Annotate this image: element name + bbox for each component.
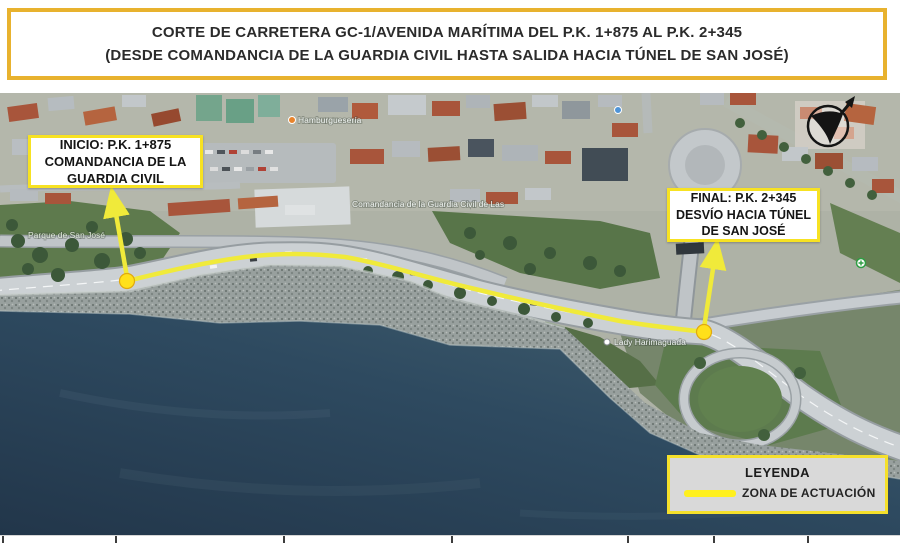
pharmacy-cross-icon	[857, 259, 866, 268]
aerial-map: Hamburguesería Comandancia de la Guardia…	[0, 93, 900, 535]
tunnel-mouth	[676, 242, 705, 254]
title-banner: CORTE DE CARRETERA GC-1/AVENIDA MARÍTIMA…	[7, 8, 887, 80]
final-line-1: FINAL: P.K. 2+345	[691, 190, 797, 207]
table-border-ticks	[0, 535, 900, 543]
final-line-2: DESVÍO HACIA TÚNEL	[676, 207, 811, 224]
inicio-line-3: GUARDIA CIVIL	[67, 170, 164, 187]
comandancia-label: Comandancia de la Guardia Civil de Las	[352, 199, 504, 209]
inicio-dot	[120, 274, 135, 289]
action-zone-label: ZONA DE ACTUACIÓN	[742, 486, 876, 500]
legend-title: LEYENDA	[670, 465, 885, 480]
inicio-callout: INICIO: P.K. 1+875 COMANDANCIA DE LA GUA…	[28, 135, 203, 188]
restaurant-label: Hamburguesería	[298, 115, 362, 125]
park-label: Parque de San José	[28, 230, 105, 240]
monument-label: Lady Harimaguada	[614, 337, 686, 347]
title-line-2: (DESDE COMANDANCIA DE LA GUARDIA CIVIL H…	[105, 45, 789, 66]
restaurant-poi-icon	[289, 117, 296, 124]
title-line-1: CORTE DE CARRETERA GC-1/AVENIDA MARÍTIMA…	[152, 22, 742, 43]
final-callout: FINAL: P.K. 2+345 DESVÍO HACIA TÚNEL DE …	[667, 188, 820, 242]
final-dot	[697, 325, 712, 340]
road-closure-plan-page: CORTE DE CARRETERA GC-1/AVENIDA MARÍTIMA…	[0, 0, 900, 543]
legend: LEYENDA ZONA DE ACTUACIÓN	[667, 455, 888, 514]
inicio-line-2: COMANDANCIA DE LA	[45, 153, 187, 170]
final-line-3: DE SAN JOSÉ	[701, 223, 785, 240]
poi-icon	[615, 107, 622, 114]
inicio-line-1: INICIO: P.K. 1+875	[60, 136, 171, 153]
action-zone-swatch	[684, 490, 736, 497]
monument-poi-icon	[604, 339, 610, 345]
